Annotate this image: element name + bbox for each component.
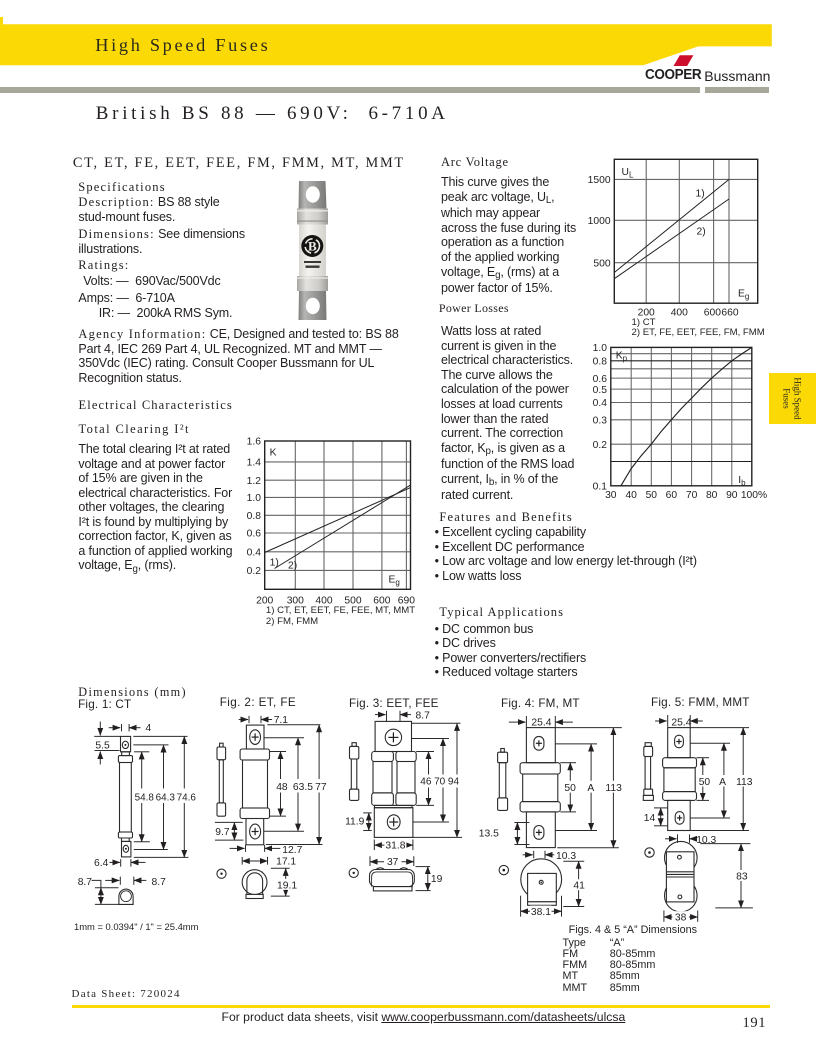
svg-text:0.2: 0.2 [593,440,608,451]
svg-text:K: K [270,447,277,458]
svg-text:48: 48 [276,782,288,793]
svg-text:10.3: 10.3 [556,851,576,862]
svg-text:1): 1) [696,189,705,200]
svg-text:Eg: Eg [389,575,400,588]
svg-text:90: 90 [726,490,738,501]
svg-text:8.7: 8.7 [78,877,93,888]
svg-text:83: 83 [736,872,748,883]
svg-text:113: 113 [605,783,622,794]
svg-text:30: 30 [605,490,617,501]
svg-text:0.4: 0.4 [247,548,262,559]
svg-text:A: A [719,777,726,788]
svg-text:50: 50 [564,783,576,794]
svg-text:37: 37 [387,857,399,868]
svg-text:8.7: 8.7 [152,877,167,888]
svg-text:0.8: 0.8 [593,357,608,368]
svg-text:1.0: 1.0 [593,343,608,354]
svg-text:Eg: Eg [738,289,749,302]
svg-text:14: 14 [644,813,656,824]
svg-text:6.4: 6.4 [94,858,109,869]
svg-text:64.3: 64.3 [156,792,176,803]
svg-text:46: 46 [420,777,432,788]
svg-text:77: 77 [315,782,327,793]
svg-text:25.4: 25.4 [531,717,551,728]
svg-text:1.4: 1.4 [247,458,262,469]
svg-text:41: 41 [573,881,585,892]
svg-text:13.5: 13.5 [479,828,499,839]
svg-text:74.6: 74.6 [177,792,197,803]
svg-text:0.4: 0.4 [593,398,608,409]
svg-text:70: 70 [434,777,446,788]
svg-text:1): 1) [270,558,279,569]
svg-text:Ib: Ib [738,475,746,488]
svg-text:19.1: 19.1 [277,880,297,891]
svg-text:113: 113 [736,777,753,788]
svg-text:50: 50 [699,777,711,788]
svg-text:UL: UL [622,167,634,180]
svg-text:5.5: 5.5 [95,740,110,751]
svg-text:12.7: 12.7 [282,845,302,856]
svg-text:38: 38 [675,913,687,924]
svg-text:10.3: 10.3 [696,835,716,846]
svg-text:11.9: 11.9 [345,817,365,828]
svg-text:19: 19 [431,874,443,885]
svg-text:63.5: 63.5 [293,782,313,793]
svg-text:B: B [308,239,317,254]
svg-text:94: 94 [448,777,460,788]
svg-text:Kp: Kp [616,350,628,363]
svg-text:0.3: 0.3 [593,416,608,427]
svg-text:1.0: 1.0 [247,493,262,504]
svg-text:31.8: 31.8 [385,841,405,852]
svg-text:500: 500 [593,258,610,269]
svg-text:50: 50 [646,490,658,501]
svg-text:17.1: 17.1 [276,857,296,868]
svg-text:0.8: 0.8 [247,511,262,522]
svg-text:2): 2) [697,227,706,238]
svg-text:4: 4 [146,723,152,734]
svg-text:8.7: 8.7 [416,710,431,721]
svg-text:0.5: 0.5 [593,385,608,396]
svg-text:100%: 100% [741,490,767,501]
svg-text:0.2: 0.2 [247,566,262,577]
svg-text:25.4: 25.4 [671,718,691,729]
svg-text:1.2: 1.2 [247,476,262,487]
svg-text:1.6: 1.6 [247,437,262,448]
svg-text:9.7: 9.7 [215,827,230,838]
svg-text:60: 60 [666,490,678,501]
svg-text:0.6: 0.6 [593,374,608,385]
svg-text:1000: 1000 [588,216,611,227]
svg-text:70: 70 [686,490,698,501]
svg-text:80: 80 [706,490,718,501]
svg-text:1500: 1500 [588,175,611,186]
svg-text:2): 2) [288,561,297,572]
svg-text:38.1: 38.1 [531,907,551,918]
svg-text:54.8: 54.8 [135,792,155,803]
svg-text:0.6: 0.6 [247,529,262,540]
svg-text:A: A [587,783,594,794]
svg-text:40: 40 [625,490,637,501]
